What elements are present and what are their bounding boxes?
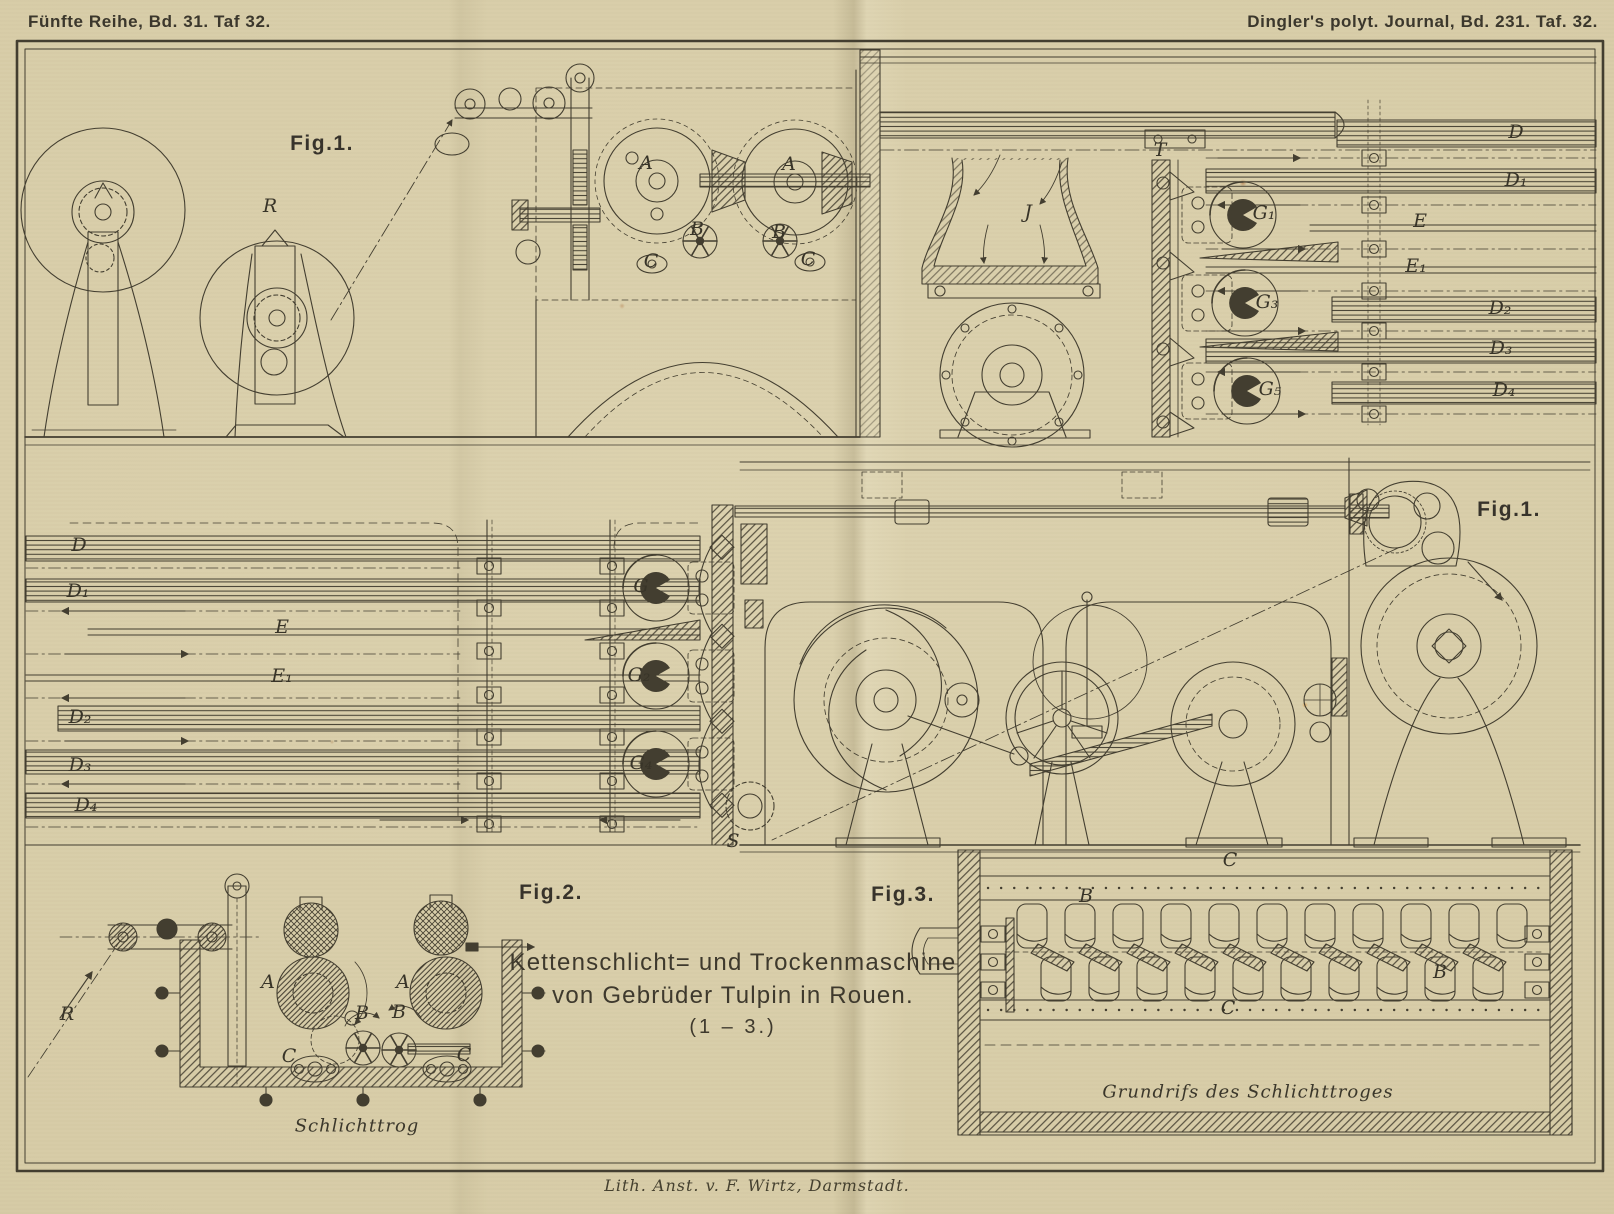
fig1-plan-belts-left bbox=[25, 520, 720, 845]
lithographer-credit: Lith. Anst. v. F. Wirtz, Darmstadt. bbox=[604, 1176, 910, 1195]
fig1-sizing-unit bbox=[435, 64, 870, 437]
plate-title-line2: von Gebrüder Tulpin in Rouen. bbox=[510, 979, 957, 1012]
title-block: Kettenschlicht= und Trockenmaschine von … bbox=[510, 946, 957, 1039]
fig2-schlichttrog-section bbox=[28, 874, 545, 1106]
plate-title-line1: Kettenschlicht= und Trockenmaschine bbox=[510, 946, 957, 979]
plate-paper: Fünfte Reihe, Bd. 31. Taf 32. Dingler's … bbox=[0, 0, 1614, 1214]
fig3-schlichttrog-plan bbox=[912, 850, 1572, 1135]
plate-figure-range: (1 – 3.) bbox=[510, 1016, 957, 1039]
fig1-drying-belts-right bbox=[1206, 100, 1596, 425]
fig1-drive-elevation bbox=[735, 462, 1590, 852]
